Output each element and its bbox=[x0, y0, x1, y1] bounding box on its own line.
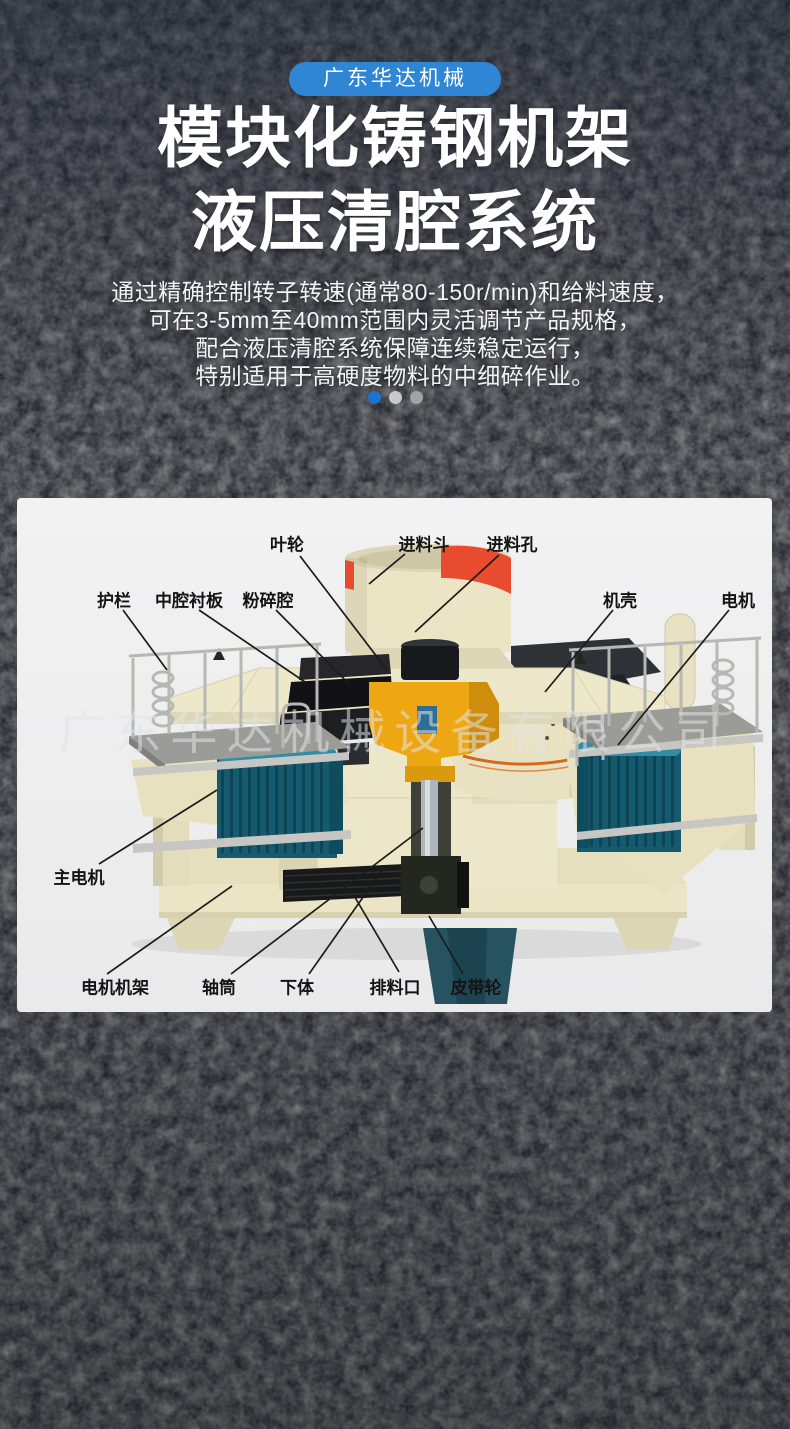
label-crushing-cavity: 粉碎腔 bbox=[243, 587, 294, 612]
label-motor: 电机 bbox=[721, 587, 755, 612]
title-line-2: 液压清腔系统 bbox=[0, 180, 790, 264]
main-title: 模块化铸钢机架 液压清腔系统 bbox=[0, 96, 790, 264]
carousel-dot-2[interactable] bbox=[389, 391, 402, 404]
diagram-panel: 广东华达机械设备有限公司 叶轮 进料斗 进料孔 护栏 中腔衬板 粉碎腔 机壳 电… bbox=[17, 498, 772, 1012]
label-guardrail: 护栏 bbox=[97, 587, 131, 612]
label-motor-frame: 电机机架 bbox=[81, 974, 149, 999]
label-belt-pulley: 皮带轮 bbox=[451, 974, 502, 999]
label-cavity-liner: 中腔衬板 bbox=[155, 587, 223, 612]
belt-pulley bbox=[401, 856, 469, 914]
carousel-dot-3[interactable] bbox=[410, 391, 423, 404]
label-main-motor: 主电机 bbox=[54, 864, 105, 889]
label-discharge-port: 排料口 bbox=[370, 974, 421, 999]
watermark-text: 广东华达机械设备有限公司 bbox=[17, 694, 772, 763]
description-line: 可在3-5mm至40mm范围内灵活调节产品规格， bbox=[0, 306, 790, 334]
label-feed-hopper: 进料斗 bbox=[399, 531, 450, 556]
carousel-dot-active[interactable] bbox=[368, 391, 381, 404]
brand-badge: 广东华达机械 bbox=[289, 62, 501, 96]
description-line: 配合液压清腔系统保障连续稳定运行， bbox=[0, 334, 790, 362]
title-line-1: 模块化铸钢机架 bbox=[0, 96, 790, 180]
label-shaft-tube: 轴筒 bbox=[202, 974, 236, 999]
label-feed-hole: 进料孔 bbox=[487, 531, 538, 556]
belt bbox=[283, 864, 405, 902]
label-lower-body: 下体 bbox=[280, 974, 314, 999]
description-line: 通过精确控制转子转速(通常80-150r/min)和给料速度， bbox=[0, 278, 790, 306]
description-line: 特别适用于高硬度物料的中细碎作业。 bbox=[0, 362, 790, 390]
carousel-dots bbox=[0, 391, 790, 404]
label-casing: 机壳 bbox=[603, 587, 637, 612]
label-impeller: 叶轮 bbox=[270, 531, 304, 556]
description: 通过精确控制转子转速(通常80-150r/min)和给料速度， 可在3-5mm至… bbox=[0, 278, 790, 390]
poster-page: 广东华达机械 模块化铸钢机架 液压清腔系统 通过精确控制转子转速(通常80-15… bbox=[0, 0, 790, 1429]
